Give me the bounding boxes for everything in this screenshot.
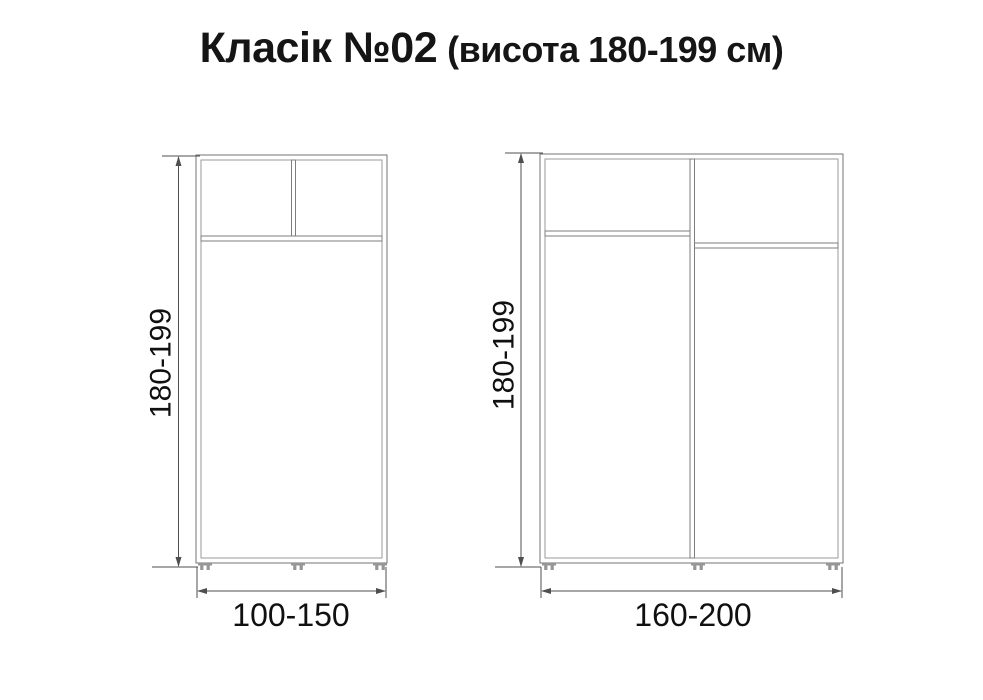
right-wardrobe-diagram: 180-199 160-200 [488, 153, 844, 633]
right-height-dimension-label: 180-199 [488, 300, 521, 410]
right-width-dimension-label: 160-200 [634, 597, 751, 633]
left-wardrobe-top-divider [292, 160, 296, 236]
wardrobe-foot [291, 563, 305, 570]
dimension-arrow-right [376, 588, 386, 594]
dimension-arrow-up [518, 153, 524, 163]
right-wardrobe-center-divider [690, 159, 695, 558]
dimension-arrow-left [197, 588, 207, 594]
wardrobe-foot [826, 563, 840, 570]
dimension-arrow-up [176, 156, 182, 166]
wardrobe-foot [691, 563, 705, 570]
left-wardrobe-shelf [201, 236, 382, 241]
left-width-dimension: 100-150 [197, 567, 386, 633]
dimension-arrow-left [541, 588, 551, 594]
left-width-dimension-label: 100-150 [232, 597, 349, 633]
right-wardrobe-left-shelf [545, 231, 690, 236]
dimension-arrow-right [832, 588, 842, 594]
wardrobe-diagrams: 180-199 100-150 [0, 0, 983, 700]
left-wardrobe-diagram: 180-199 100-150 [145, 155, 388, 633]
right-width-dimension: 160-200 [541, 567, 842, 633]
wardrobe-foot [198, 563, 212, 570]
dimension-arrow-down [518, 557, 524, 567]
left-height-dimension-label: 180-199 [145, 308, 178, 418]
dimension-arrow-down [176, 557, 182, 567]
left-height-dimension: 180-199 [145, 156, 201, 567]
wardrobe-foot [542, 563, 556, 570]
right-height-dimension: 180-199 [488, 153, 544, 567]
wardrobe-foot [373, 563, 387, 570]
right-wardrobe-right-shelf [695, 243, 839, 248]
